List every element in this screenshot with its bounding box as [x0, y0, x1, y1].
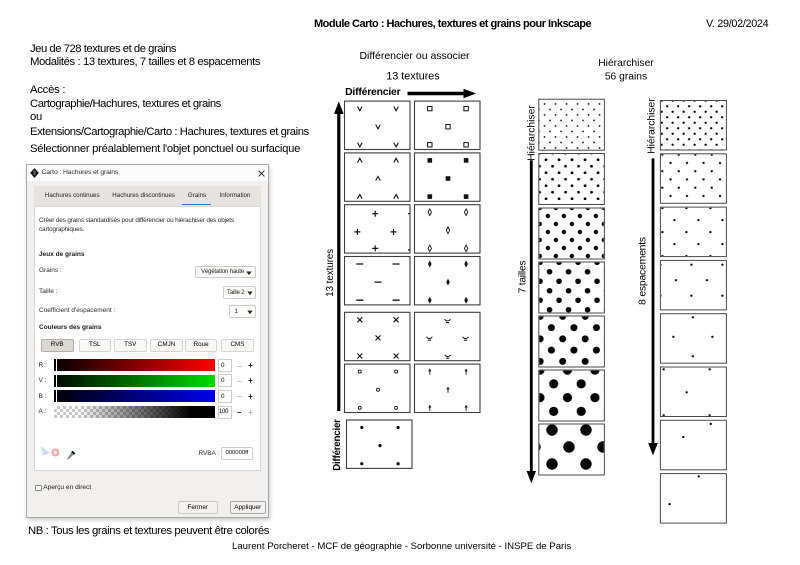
svg-text:13 textures: 13 textures [386, 71, 440, 83]
svg-text:Différencier: Différencier [345, 87, 401, 98]
svg-text:Différencier: Différencier [332, 419, 343, 471]
svg-text:7 tailles: 7 tailles [518, 261, 529, 294]
svg-text:8 espacements: 8 espacements [638, 237, 649, 305]
svg-text:Différencier ou associer: Différencier ou associer [359, 50, 470, 62]
svg-text:Hiérarchiser: Hiérarchiser [527, 105, 538, 161]
svg-text:56 grains: 56 grains [605, 72, 647, 83]
svg-text:13 textures: 13 textures [325, 249, 336, 297]
svg-text:Hiérarchiser: Hiérarchiser [647, 98, 658, 154]
svg-text:Hiérarchiser: Hiérarchiser [598, 58, 654, 69]
